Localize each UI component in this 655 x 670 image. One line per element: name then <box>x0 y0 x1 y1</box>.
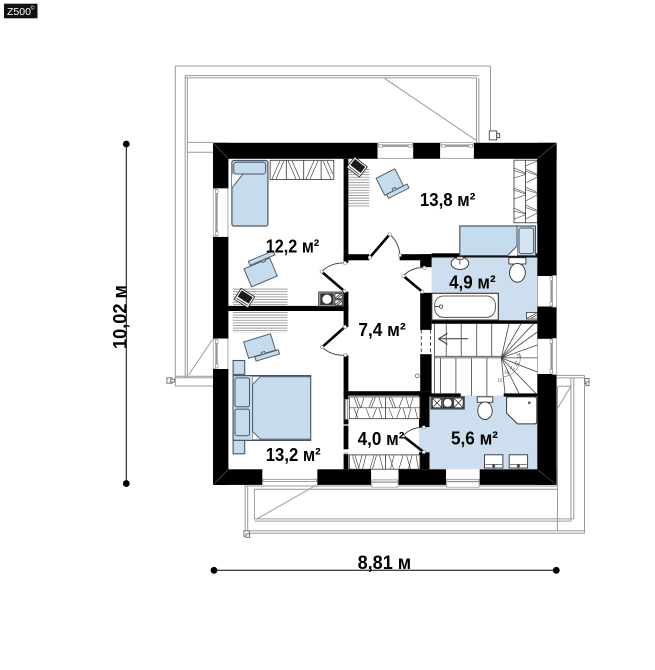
svg-text:5,6 м²: 5,6 м² <box>451 427 498 448</box>
svg-text:7,4 м²: 7,4 м² <box>358 319 405 340</box>
svg-text:4,0 м²: 4,0 м² <box>358 428 405 449</box>
svg-text:Z500: Z500 <box>7 6 31 18</box>
svg-text:4,9 м²: 4,9 м² <box>449 272 496 293</box>
svg-text:8,81 м: 8,81 м <box>358 553 412 574</box>
svg-text:13,8 м²: 13,8 м² <box>420 189 475 210</box>
svg-text:13,2 м²: 13,2 м² <box>266 444 321 465</box>
svg-text:10,02 м: 10,02 м <box>110 285 131 349</box>
svg-text:©: © <box>31 5 35 12</box>
svg-text:12,2 м²: 12,2 м² <box>266 235 319 256</box>
